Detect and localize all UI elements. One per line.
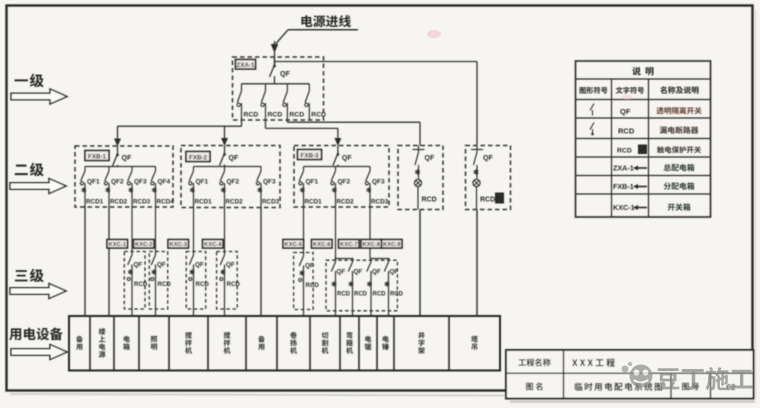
svg-text:RCD2: RCD2 — [337, 199, 355, 206]
svg-text:FXB-2: FXB-2 — [189, 154, 207, 161]
svg-text:QF: QF — [390, 269, 399, 276]
svg-text:RCD: RCD — [244, 112, 259, 119]
svg-text:QF: QF — [157, 262, 166, 269]
svg-text:QF3: QF3 — [372, 179, 385, 186]
svg-text:QF: QF — [229, 155, 239, 162]
svg-text:RCD2: RCD2 — [110, 199, 128, 206]
svg-text:RCD: RCD — [618, 127, 635, 136]
svg-text:QF3: QF3 — [263, 179, 276, 186]
svg-text:RCD: RCD — [289, 112, 304, 119]
svg-text:FXB-1: FXB-1 — [613, 182, 634, 191]
svg-text:KXC-1: KXC-1 — [109, 242, 127, 248]
svg-text:FXB-3: FXB-3 — [301, 152, 319, 159]
svg-text:RCD1: RCD1 — [86, 199, 104, 206]
svg-text:QF: QF — [195, 262, 204, 269]
svg-text:QF: QF — [620, 107, 631, 116]
svg-text:QF: QF — [372, 269, 381, 276]
svg-text:RCD: RCD — [196, 281, 210, 288]
svg-text:RCD: RCD — [422, 197, 437, 204]
svg-text:RCD: RCD — [227, 281, 241, 288]
svg-text:QF1: QF1 — [196, 179, 209, 186]
svg-text:RCD: RCD — [311, 112, 326, 119]
svg-text:QF: QF — [226, 262, 235, 269]
svg-text:KXC-4: KXC-4 — [204, 242, 222, 248]
svg-text:QF1: QF1 — [87, 179, 100, 186]
svg-text:QF2: QF2 — [227, 179, 240, 186]
svg-text:ZXA-1: ZXA-1 — [237, 62, 255, 69]
svg-text:RCD3: RCD3 — [371, 199, 389, 206]
svg-text:RCD3: RCD3 — [133, 199, 151, 206]
svg-text:QF2: QF2 — [111, 179, 124, 186]
svg-text:FXB-1: FXB-1 — [88, 153, 106, 160]
svg-text:RCD4: RCD4 — [157, 199, 175, 206]
svg-text:RCD: RCD — [617, 148, 632, 155]
svg-text:RCD: RCD — [480, 197, 495, 204]
svg-text:QF: QF — [342, 155, 352, 162]
svg-text:QF: QF — [354, 269, 363, 276]
svg-text:QF: QF — [122, 155, 132, 162]
svg-text:QF4: QF4 — [158, 179, 171, 186]
svg-text:KXC-5: KXC-5 — [285, 242, 303, 248]
svg-text:RCD1: RCD1 — [195, 199, 213, 206]
svg-text:RCD: RCD — [354, 292, 368, 298]
svg-text:RCD: RCD — [390, 292, 404, 298]
svg-text:KXC-7: KXC-7 — [340, 242, 357, 248]
svg-text:QF2: QF2 — [338, 179, 351, 186]
svg-text:RCD3: RCD3 — [262, 199, 280, 206]
svg-text:QF: QF — [134, 262, 143, 269]
svg-text:RCD: RCD — [134, 281, 148, 288]
svg-text:ZXA-1: ZXA-1 — [613, 164, 634, 173]
svg-text:RCD: RCD — [268, 112, 283, 119]
svg-text:KXC-9: KXC-9 — [383, 242, 401, 248]
svg-text:QF: QF — [425, 155, 435, 162]
svg-text:RCD2: RCD2 — [226, 199, 244, 206]
svg-text:KXC-1: KXC-1 — [613, 203, 635, 212]
svg-text:RCD: RCD — [337, 292, 351, 298]
svg-text:QF: QF — [280, 71, 290, 78]
svg-text:KXC-3: KXC-3 — [170, 242, 188, 248]
svg-text:QF: QF — [305, 263, 314, 270]
svg-text:QF: QF — [337, 269, 346, 276]
svg-text:KXC-8: KXC-8 — [363, 242, 381, 248]
svg-text:RCD: RCD — [306, 282, 320, 289]
svg-text:KXC-2: KXC-2 — [135, 242, 152, 248]
svg-text:RCD: RCD — [158, 281, 172, 288]
svg-text:RCD1: RCD1 — [305, 199, 323, 206]
svg-text:QF: QF — [483, 155, 493, 162]
svg-text:RCD: RCD — [373, 292, 387, 298]
svg-text:QF3: QF3 — [134, 179, 147, 186]
svg-text:QF1: QF1 — [306, 179, 319, 186]
svg-text:KXC-6: KXC-6 — [313, 242, 331, 248]
